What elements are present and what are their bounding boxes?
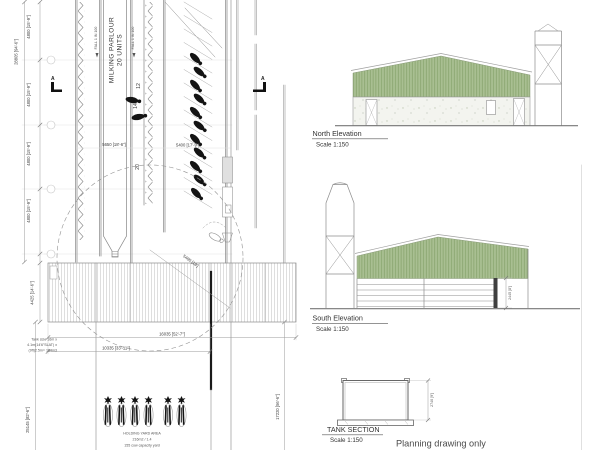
tank-note-line1: Tank size 16m x	[31, 338, 57, 342]
parlour-title-line1: MILKING PARLOUR	[109, 17, 116, 83]
dim-yard-depth: 4425 [14'-6"]	[30, 281, 35, 304]
stall-number-20: 20	[135, 164, 141, 170]
holding-yard-line2: 216m2 / 1.4	[133, 438, 152, 442]
dim-pit-width: 5400 [17'-9"]	[176, 143, 199, 148]
tank-note-line2: 4.1m(14'6"SLAT) x	[27, 343, 57, 347]
yard-dimensions: 16035 [52'-7"] 10335 [33'-11"] Tank size…	[27, 324, 298, 354]
dairy-equipment	[223, 157, 233, 183]
tank-section-label: TANK SECTION	[327, 425, 380, 434]
stall-number-14: 14	[133, 103, 139, 109]
dim-site-right: 17220 [56'-6"]	[275, 394, 280, 420]
collecting-yard: 5480 [18']	[48, 165, 296, 450]
dim-bay-4: 4800 [15'-9"]	[26, 199, 31, 222]
south-elevation-scale: Scale 1:150	[316, 326, 349, 333]
window	[487, 101, 496, 115]
fall-arrows	[96, 53, 136, 58]
planning-drawing-sheet: 4800 [15'-9"] 4800 [15'-9"] 4800 [15'-9"…	[0, 0, 600, 450]
north-elevation-drawing: North Elevation Scale 1:150	[312, 24, 578, 149]
planning-note: Planning drawing only	[396, 439, 486, 449]
south-elevation-label: South Elevation	[313, 314, 363, 323]
north-elevation-scale: Scale 1:150	[316, 142, 349, 149]
drawing-canvas: 4800 [15'-9"] 4800 [15'-9"] 4800 [15'-9"…	[0, 0, 600, 450]
dim-yard-inner: 10335 [33'-11"]	[102, 346, 130, 351]
holding-yard: HOLDING YARD AREA 216m2 / 1.4 155 cow ca…	[103, 396, 186, 448]
roof-cladding	[353, 56, 530, 97]
tank-section-drawing: 2740 [9'] TANK SECTION Scale 1:150	[322, 379, 434, 445]
feed-barrier-zigzag-right	[146, 2, 153, 204]
tank-walls	[343, 381, 408, 421]
roof-cut-lines	[165, 2, 222, 57]
parlour-title-line2: 20 UNITS	[117, 34, 124, 66]
dim-bay-2: 4800 [15'-9"]	[26, 83, 31, 106]
dim-bay-1: 4800 [15'-9"]	[26, 15, 31, 38]
svg-text:A: A	[261, 76, 265, 82]
silo-south	[326, 183, 354, 308]
cow-outline	[208, 231, 225, 244]
silo-north	[535, 24, 562, 126]
tank-note-line3: (9ft)2.5m= 164m3	[29, 349, 57, 353]
wall	[353, 97, 530, 126]
south-height-dim: 2445 [8']	[508, 286, 512, 300]
gates	[357, 285, 494, 307]
stall-number-12: 12	[136, 83, 142, 89]
section-marker-left: A	[51, 76, 62, 92]
dim-parlour-width: 5650 [18'-6"]	[102, 142, 125, 147]
tank-height-dim: 2740 [9']	[430, 393, 434, 407]
fall-note-left: FALL 1 IN 100	[94, 27, 98, 50]
dim-overall: 28805 [94'-6"]	[14, 39, 19, 65]
feed-barrier-zigzag-left	[78, 2, 85, 240]
dim-bay-3: 4800 [15'-9"]	[26, 142, 31, 165]
holding-yard-line3: 155 cow capacity yard	[124, 444, 160, 448]
milking-parlour-building	[76, 0, 286, 450]
dim-yard-width: 16035 [52'-7"]	[159, 332, 185, 337]
plan-view: 4800 [15'-9"] 4800 [15'-9"] 4800 [15'-9"…	[14, 0, 582, 450]
south-elevation-drawing: 2445 [8'] South Elevation Scale 1:150	[310, 183, 580, 333]
gate-post	[494, 278, 498, 308]
dim-site-left: 25145 [82'-6"]	[25, 407, 30, 433]
north-elevation-label: North Elevation	[313, 129, 362, 138]
holding-yard-line1: HOLDING YARD AREA	[123, 432, 161, 436]
svg-text:A: A	[51, 76, 55, 82]
tank-section-scale: Scale 1:150	[330, 437, 363, 444]
fall-note-right: FALL 1 IN 100	[131, 27, 135, 50]
